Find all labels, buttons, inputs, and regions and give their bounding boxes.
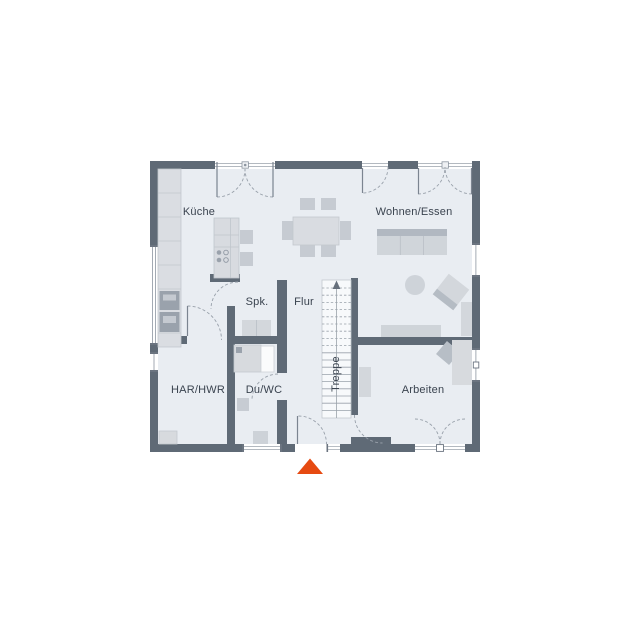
wall-flur-duwc-upper <box>277 280 287 373</box>
front-door <box>295 444 340 452</box>
dining-chair <box>300 198 315 210</box>
window <box>472 348 480 382</box>
coffee-table <box>405 275 425 295</box>
floor-plan-drawing <box>0 0 636 636</box>
french-door-bottom <box>415 444 465 452</box>
window <box>150 245 158 345</box>
room-label-treppe: Treppe <box>330 356 342 392</box>
bar-stool <box>240 230 253 244</box>
office-shelf <box>359 367 371 397</box>
entrance-arrow-icon <box>297 459 323 475</box>
bar-stool <box>240 252 253 266</box>
dining-chair <box>340 221 351 240</box>
dining-chair <box>321 198 336 210</box>
room-label-du-wc: Du/WC <box>246 384 282 396</box>
tv-lowboard <box>461 302 472 336</box>
outer-wall-right <box>472 161 480 452</box>
room-label-flur: Flur <box>294 296 314 308</box>
toilet <box>253 431 268 444</box>
room-label-wohnen-essen: Wohnen/Essen <box>376 206 453 218</box>
room-label-spk: Spk. <box>246 296 269 308</box>
dining-chair <box>300 245 315 257</box>
room-label-kueche: Küche <box>183 206 215 218</box>
dining-table <box>293 217 339 245</box>
desk <box>452 340 472 385</box>
staircase <box>322 280 351 418</box>
wall-flur-duwc-lower <box>277 400 287 444</box>
floor-plan: Küche Wohnen/Essen Spk. Flur Treppe HAR/… <box>0 0 636 636</box>
window <box>150 352 158 372</box>
dining-chair <box>321 245 336 257</box>
sofa <box>377 229 447 255</box>
dining-chair <box>282 221 293 240</box>
sideboard <box>381 325 441 337</box>
washbasin <box>237 398 249 411</box>
room-label-har-hwr: HAR/HWR <box>171 384 225 396</box>
kitchen-counter <box>158 169 181 347</box>
pantry-shelf <box>242 320 271 336</box>
room-label-arbeiten: Arbeiten <box>402 384 445 396</box>
french-door-top-right <box>418 161 472 169</box>
bath-cabinet <box>261 346 274 372</box>
wall-stairs-right <box>351 278 358 415</box>
window <box>242 444 282 452</box>
washing-machine <box>159 431 177 444</box>
french-door-top-left <box>215 161 275 169</box>
door-top-single <box>362 161 388 169</box>
shower <box>234 345 261 372</box>
window <box>472 243 480 277</box>
kitchen-island <box>214 218 239 278</box>
wall-spk-left <box>227 306 235 336</box>
